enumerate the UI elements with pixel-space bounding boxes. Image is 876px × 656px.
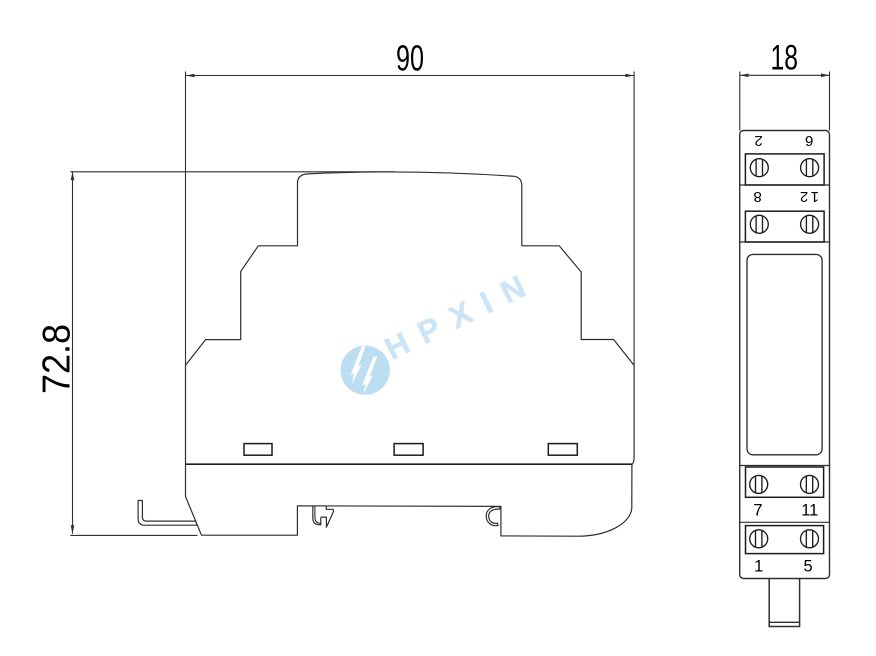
svg-text:5: 5 (804, 558, 813, 576)
svg-text:7: 7 (753, 502, 762, 520)
svg-text:6: 6 (805, 132, 813, 149)
svg-text:11: 11 (801, 502, 818, 520)
svg-text:90: 90 (396, 38, 424, 79)
svg-text:2: 2 (754, 132, 762, 149)
svg-text:18: 18 (770, 38, 798, 77)
svg-text:12: 12 (797, 188, 819, 205)
svg-text:8: 8 (753, 188, 761, 205)
svg-text:1: 1 (754, 558, 763, 576)
